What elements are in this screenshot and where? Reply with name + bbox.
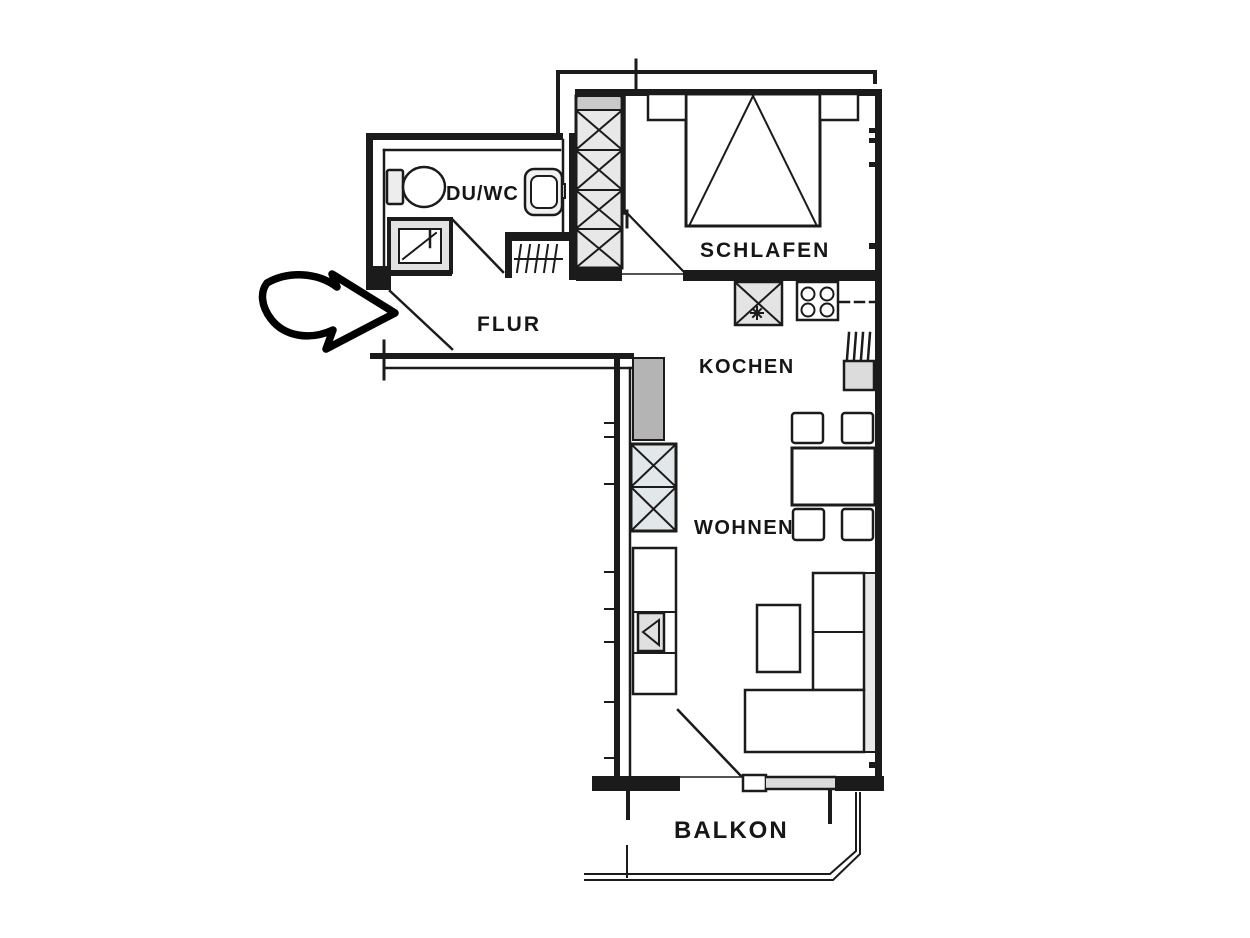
bed-icon — [686, 94, 820, 226]
room-label-schlafen: SCHLAFEN — [700, 240, 830, 261]
floor-plan-drawing — [0, 0, 1250, 938]
shower-icon — [389, 219, 451, 272]
dining-table-icon — [792, 448, 875, 505]
kitchen-appliance-icon — [844, 333, 874, 390]
tv-cabinet-icon — [633, 548, 676, 694]
toilet-icon — [387, 167, 445, 207]
floor-plan-stage: DU/WC SCHLAFEN FLUR KOCHEN WOHNEN BALKON — [0, 0, 1250, 938]
room-label-kochen: KOCHEN — [699, 357, 795, 377]
west-wall — [605, 359, 630, 780]
coffee-table-icon — [757, 605, 800, 672]
kitchen-sink-icon — [735, 282, 782, 325]
room-label-du-wc: DU/WC — [446, 184, 519, 204]
room-label-balkon: BALKON — [674, 819, 789, 843]
room-label-flur: FLUR — [477, 314, 541, 335]
entrance-door — [390, 291, 452, 349]
nightstand-icon — [648, 94, 686, 120]
stove-icon — [797, 282, 838, 320]
chair-icon — [792, 413, 823, 443]
balcony-door — [678, 710, 743, 777]
washbasin-icon — [525, 169, 565, 215]
wardrobe-icon — [576, 96, 624, 268]
duct-block — [633, 358, 664, 440]
hallway-wall — [370, 341, 634, 379]
bedroom-wall — [576, 268, 882, 281]
bedroom-door — [627, 211, 683, 271]
chair-icon — [793, 509, 824, 540]
balcony-window — [766, 778, 835, 788]
living-wardrobe-icon — [631, 444, 676, 531]
chair-icon — [842, 509, 873, 540]
nightstand-icon — [820, 94, 858, 120]
bathroom-door — [452, 219, 503, 272]
radiator-icon — [515, 245, 562, 272]
chair-icon — [842, 413, 873, 443]
room-label-wohnen: WOHNEN — [694, 518, 794, 538]
